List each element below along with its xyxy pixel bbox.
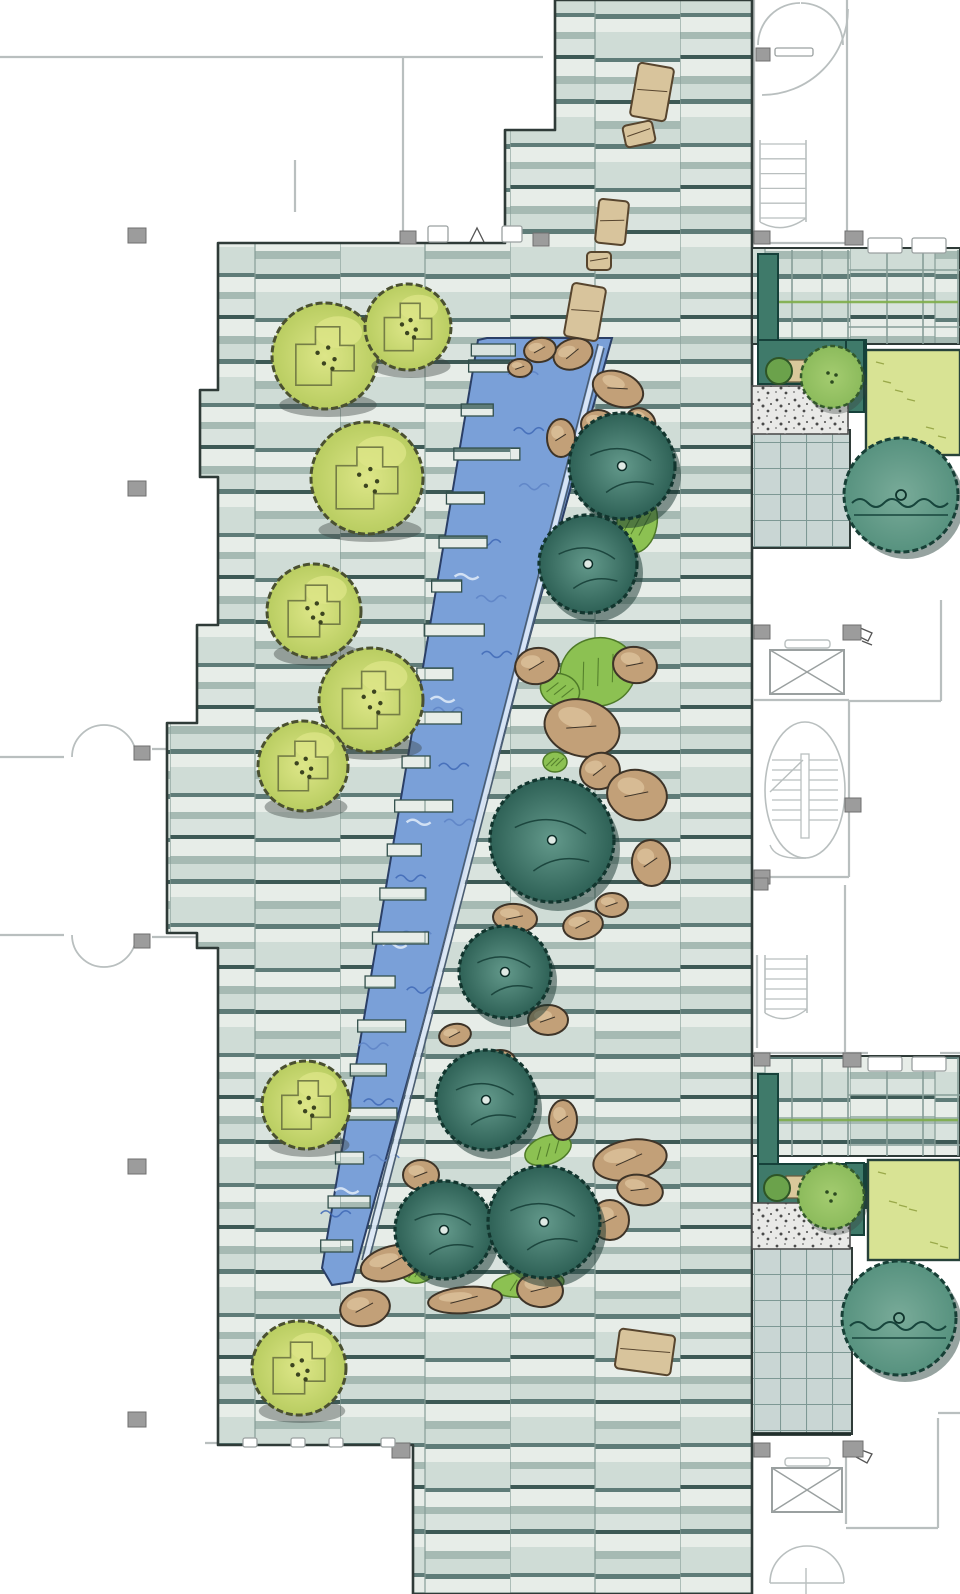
canopy-dot bbox=[311, 615, 315, 619]
canopy-dot bbox=[412, 335, 416, 339]
tree-canopy bbox=[252, 1321, 346, 1415]
canopy-dot bbox=[290, 1363, 294, 1367]
canopy-dot bbox=[375, 479, 379, 483]
canopy-dot bbox=[307, 775, 311, 779]
hedge bbox=[758, 254, 778, 350]
trunk-dot bbox=[540, 1218, 549, 1227]
paving-finger bbox=[417, 668, 453, 680]
structural-column bbox=[128, 481, 146, 496]
boulder bbox=[596, 893, 628, 917]
paving-finger bbox=[446, 492, 484, 504]
boulder-body bbox=[547, 419, 575, 457]
wall-pilaster-tab bbox=[428, 226, 448, 242]
paving-finger bbox=[395, 800, 453, 812]
structural-column bbox=[128, 228, 146, 243]
stone-slab bbox=[622, 120, 656, 148]
canopy-dot bbox=[303, 1109, 307, 1113]
bush bbox=[766, 358, 792, 384]
structural-column bbox=[128, 1412, 146, 1427]
canopy-dot bbox=[825, 1190, 829, 1194]
canopy-dot bbox=[368, 705, 372, 709]
canopy-highlight bbox=[294, 732, 335, 759]
boulder bbox=[547, 419, 575, 457]
structural-column bbox=[754, 625, 770, 639]
canopy-dot bbox=[332, 357, 336, 361]
wall-pilaster-tab bbox=[868, 1057, 902, 1071]
grid-paving bbox=[752, 1248, 852, 1434]
canopy-dot bbox=[309, 767, 313, 771]
courtyard-paving-strip bbox=[752, 248, 960, 344]
bush-body bbox=[764, 1175, 790, 1201]
structural-column bbox=[845, 231, 863, 245]
structural-column bbox=[754, 1053, 770, 1066]
canopy-dot bbox=[306, 1096, 310, 1100]
canopy-dot bbox=[298, 1100, 302, 1104]
canopy-dot bbox=[357, 472, 361, 476]
canopy-dot bbox=[315, 351, 319, 355]
boulder-body bbox=[549, 1100, 577, 1140]
wall-pilaster-tab bbox=[912, 238, 946, 253]
wall-pilaster-tab bbox=[912, 1057, 946, 1071]
wall-pilaster-tab bbox=[381, 1438, 395, 1447]
light-tree bbox=[258, 721, 348, 819]
paving-finger bbox=[387, 844, 421, 856]
canopy-dot bbox=[408, 318, 412, 322]
canopy-dot bbox=[373, 489, 377, 493]
canopy-dot bbox=[315, 601, 319, 605]
canopy-dot bbox=[833, 1192, 837, 1196]
canopy-dot bbox=[300, 770, 304, 774]
paving-finger bbox=[365, 976, 395, 988]
trunk-dot bbox=[548, 836, 557, 845]
canopy-dot bbox=[330, 367, 334, 371]
canopy-dot bbox=[326, 345, 330, 349]
canopy-dot bbox=[362, 695, 366, 699]
canopy-dot bbox=[296, 1372, 300, 1376]
canopy-dot bbox=[376, 710, 380, 714]
canopy-dot bbox=[400, 322, 404, 326]
canopy-dot bbox=[303, 1377, 307, 1381]
tree-canopy bbox=[262, 1061, 350, 1149]
paving-finger bbox=[380, 888, 426, 900]
canopy-dot bbox=[320, 612, 324, 616]
boulder bbox=[549, 1100, 577, 1140]
canopy-dot bbox=[830, 380, 834, 384]
canopy-dot bbox=[372, 689, 376, 693]
canopy-dot bbox=[414, 327, 418, 331]
trunk-dot bbox=[501, 968, 510, 977]
stair-stringer bbox=[801, 754, 809, 838]
bush bbox=[764, 1175, 790, 1201]
paving-finger bbox=[372, 932, 428, 944]
stepping-stone bbox=[595, 199, 629, 246]
structural-column bbox=[400, 231, 416, 244]
paving-finger bbox=[321, 1240, 353, 1252]
canopy-highlight bbox=[305, 576, 347, 604]
tree-canopy bbox=[844, 438, 958, 552]
tree-canopy bbox=[365, 284, 451, 370]
structural-column bbox=[754, 878, 768, 890]
light-tree bbox=[365, 284, 451, 378]
wall-pilaster-tab bbox=[868, 238, 902, 253]
light-tree bbox=[252, 1321, 346, 1423]
stone-slab bbox=[595, 199, 629, 246]
structural-column bbox=[134, 934, 150, 948]
structural-column bbox=[756, 48, 770, 61]
structural-column bbox=[134, 746, 150, 760]
site-plan-canvas bbox=[0, 0, 960, 1594]
canopy-dot bbox=[826, 371, 830, 375]
tree-canopy bbox=[267, 564, 361, 658]
trunk-dot bbox=[440, 1226, 449, 1235]
canopy-highlight bbox=[297, 1072, 337, 1098]
wall-pilaster-tab bbox=[329, 1438, 343, 1447]
light-tree bbox=[267, 564, 361, 666]
canopy-dot bbox=[304, 757, 308, 761]
bush-body bbox=[766, 358, 792, 384]
stepping-stone bbox=[614, 1328, 675, 1375]
boulder bbox=[508, 359, 532, 377]
paving-finger bbox=[350, 1064, 386, 1076]
trunk-dot bbox=[584, 560, 593, 569]
tree-canopy bbox=[842, 1261, 956, 1375]
paving-finger bbox=[439, 536, 487, 548]
tree-canopy bbox=[258, 721, 348, 811]
paving-finger bbox=[432, 580, 462, 592]
trunk-dot bbox=[482, 1096, 491, 1105]
canopy-dot bbox=[318, 620, 322, 624]
canopy-dot bbox=[305, 606, 309, 610]
paving-finger bbox=[336, 1152, 364, 1164]
structural-column bbox=[754, 1443, 770, 1457]
canopy-highlight bbox=[314, 316, 362, 348]
canopy-dot bbox=[829, 1199, 833, 1203]
canopy-dot bbox=[364, 484, 368, 488]
wall-pilaster-tab bbox=[775, 48, 813, 56]
structural-column bbox=[845, 798, 861, 812]
grid-paving bbox=[752, 430, 850, 548]
structural-column bbox=[843, 625, 861, 640]
paving-finger bbox=[424, 624, 484, 636]
paving-finger bbox=[402, 756, 430, 768]
canopy-dot bbox=[312, 1105, 316, 1109]
canopy-dot bbox=[295, 761, 299, 765]
tree-canopy bbox=[311, 422, 423, 534]
tree-canopy bbox=[801, 346, 863, 408]
canopy-dot bbox=[378, 701, 382, 705]
canopy-highlight bbox=[290, 1333, 332, 1361]
paving-finger bbox=[328, 1196, 370, 1208]
canopy-dot bbox=[310, 1113, 314, 1117]
canopy-highlight bbox=[361, 661, 408, 692]
structural-column bbox=[843, 1441, 863, 1457]
canopy-dot bbox=[300, 1358, 304, 1362]
paving-finger bbox=[358, 1020, 406, 1032]
trunk-dot bbox=[618, 462, 627, 471]
light-tree bbox=[311, 422, 423, 542]
canopy-dot bbox=[368, 467, 372, 471]
structural-column bbox=[843, 1053, 861, 1067]
structural-column bbox=[754, 231, 770, 244]
canopy-dot bbox=[322, 361, 326, 365]
structural-column bbox=[533, 233, 549, 246]
paving-finger bbox=[471, 344, 515, 356]
canopy-dot bbox=[305, 1369, 309, 1373]
grass-patch bbox=[543, 752, 567, 772]
tree-canopy bbox=[798, 1163, 864, 1229]
hedge bbox=[758, 1074, 778, 1170]
canopy-highlight bbox=[356, 436, 406, 470]
structural-column bbox=[128, 1159, 146, 1174]
stepping-stone bbox=[622, 120, 656, 148]
canopy-dot bbox=[834, 373, 838, 377]
paving-finger bbox=[461, 404, 493, 416]
light-tree bbox=[262, 1061, 350, 1157]
wall-pilaster-tab bbox=[291, 1438, 305, 1447]
paving-finger bbox=[454, 448, 520, 460]
canopy-highlight bbox=[399, 295, 438, 321]
canopy-dot bbox=[405, 331, 409, 335]
tree-canopy bbox=[272, 303, 378, 409]
stepping-stone bbox=[587, 252, 611, 270]
wall-pilaster-tab bbox=[243, 1438, 257, 1447]
light-tree bbox=[272, 303, 378, 417]
wall-pilaster-tab bbox=[502, 226, 522, 242]
